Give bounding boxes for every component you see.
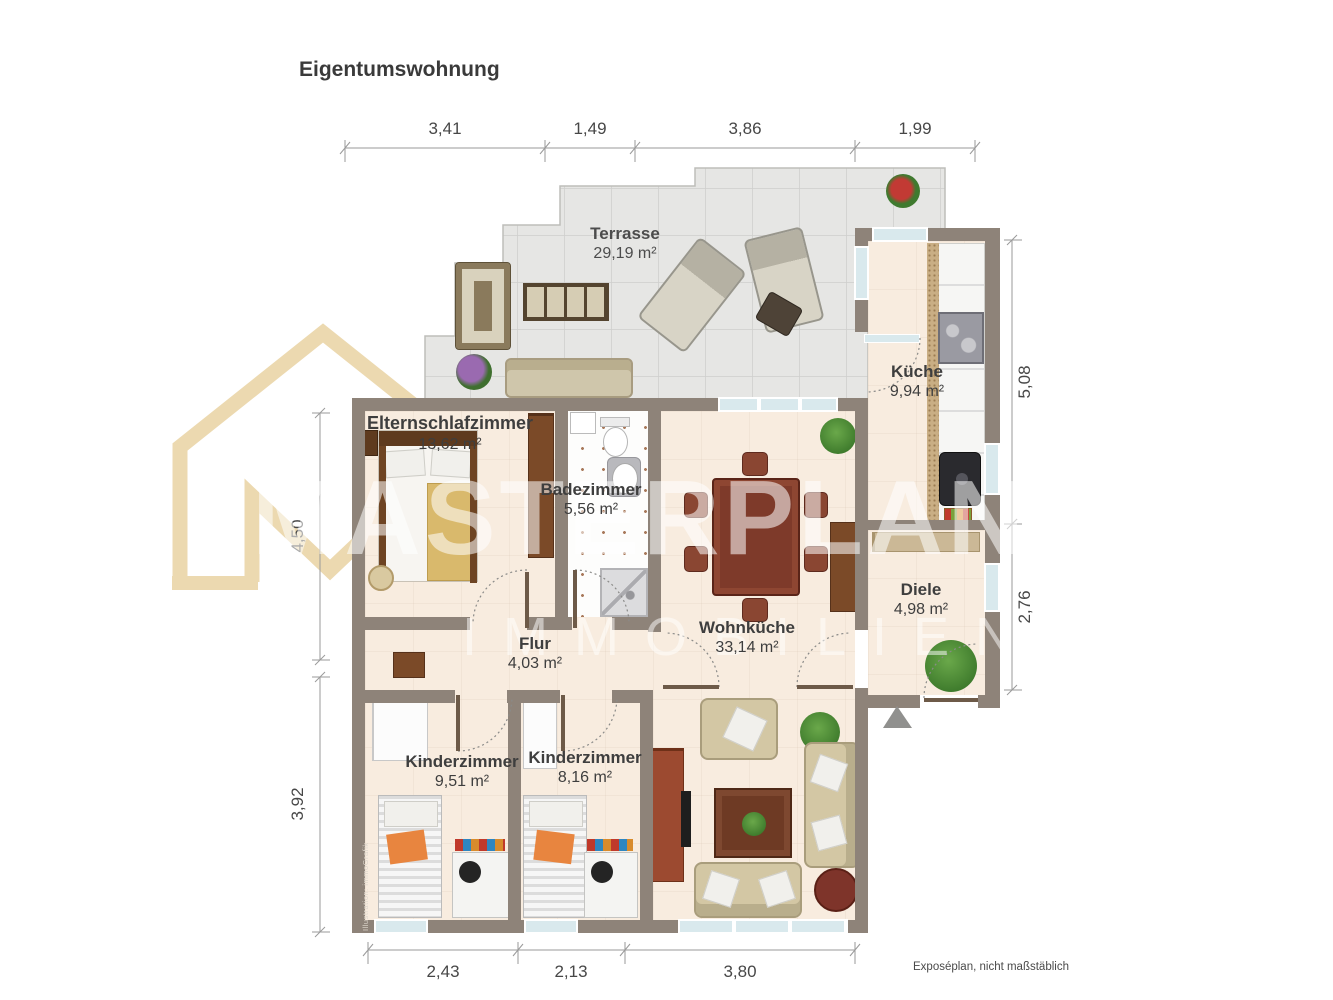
room-label-elternschlafzimmer: Elternschlafzimmer 13,62 m² — [367, 413, 533, 454]
svg-text:1,99: 1,99 — [898, 119, 931, 138]
svg-text:3,41: 3,41 — [428, 119, 461, 138]
room-label-terrasse: Terrasse 29,19 m² — [590, 224, 660, 264]
floor-plan: 3,41 1,49 3,86 1,99 5,08 2,76 4,50 3,92 — [0, 0, 1333, 1000]
room-label-badezimmer: Badezimmer 5,56 m² — [540, 480, 641, 520]
room-label-kinderzimmer-2: Kinderzimmer 8,16 m² — [528, 748, 641, 788]
room-label-kinderzimmer-1: Kinderzimmer 9,51 m² — [405, 752, 518, 792]
room-label-diele: Diele 4,98 m² — [894, 580, 948, 620]
svg-text:1,49: 1,49 — [573, 119, 606, 138]
room-label-wohnkueche: Wohnküche 33,14 m² — [699, 618, 795, 658]
svg-text:3,80: 3,80 — [723, 962, 756, 981]
svg-text:3,86: 3,86 — [728, 119, 761, 138]
page-title: Eigentumswohnung — [299, 58, 500, 82]
svg-text:5,08: 5,08 — [1015, 365, 1034, 398]
svg-text:2,43: 2,43 — [426, 962, 459, 981]
dimension-line-bottom: 2,43 2,13 3,80 — [363, 942, 860, 981]
entrance-arrow-icon — [883, 706, 912, 728]
scale-note: Exposéplan, nicht maßstäblich — [913, 961, 1069, 973]
dimension-line-top: 3,41 1,49 3,86 1,99 — [340, 119, 980, 162]
illustration-credit: Illustration: immoGrafik — [361, 842, 370, 931]
svg-text:2,13: 2,13 — [554, 962, 587, 981]
room-label-kueche: Küche 9,94 m² — [890, 362, 944, 402]
room-label-flur: Flur 4,03 m² — [508, 634, 562, 674]
svg-text:3,92: 3,92 — [288, 787, 307, 820]
